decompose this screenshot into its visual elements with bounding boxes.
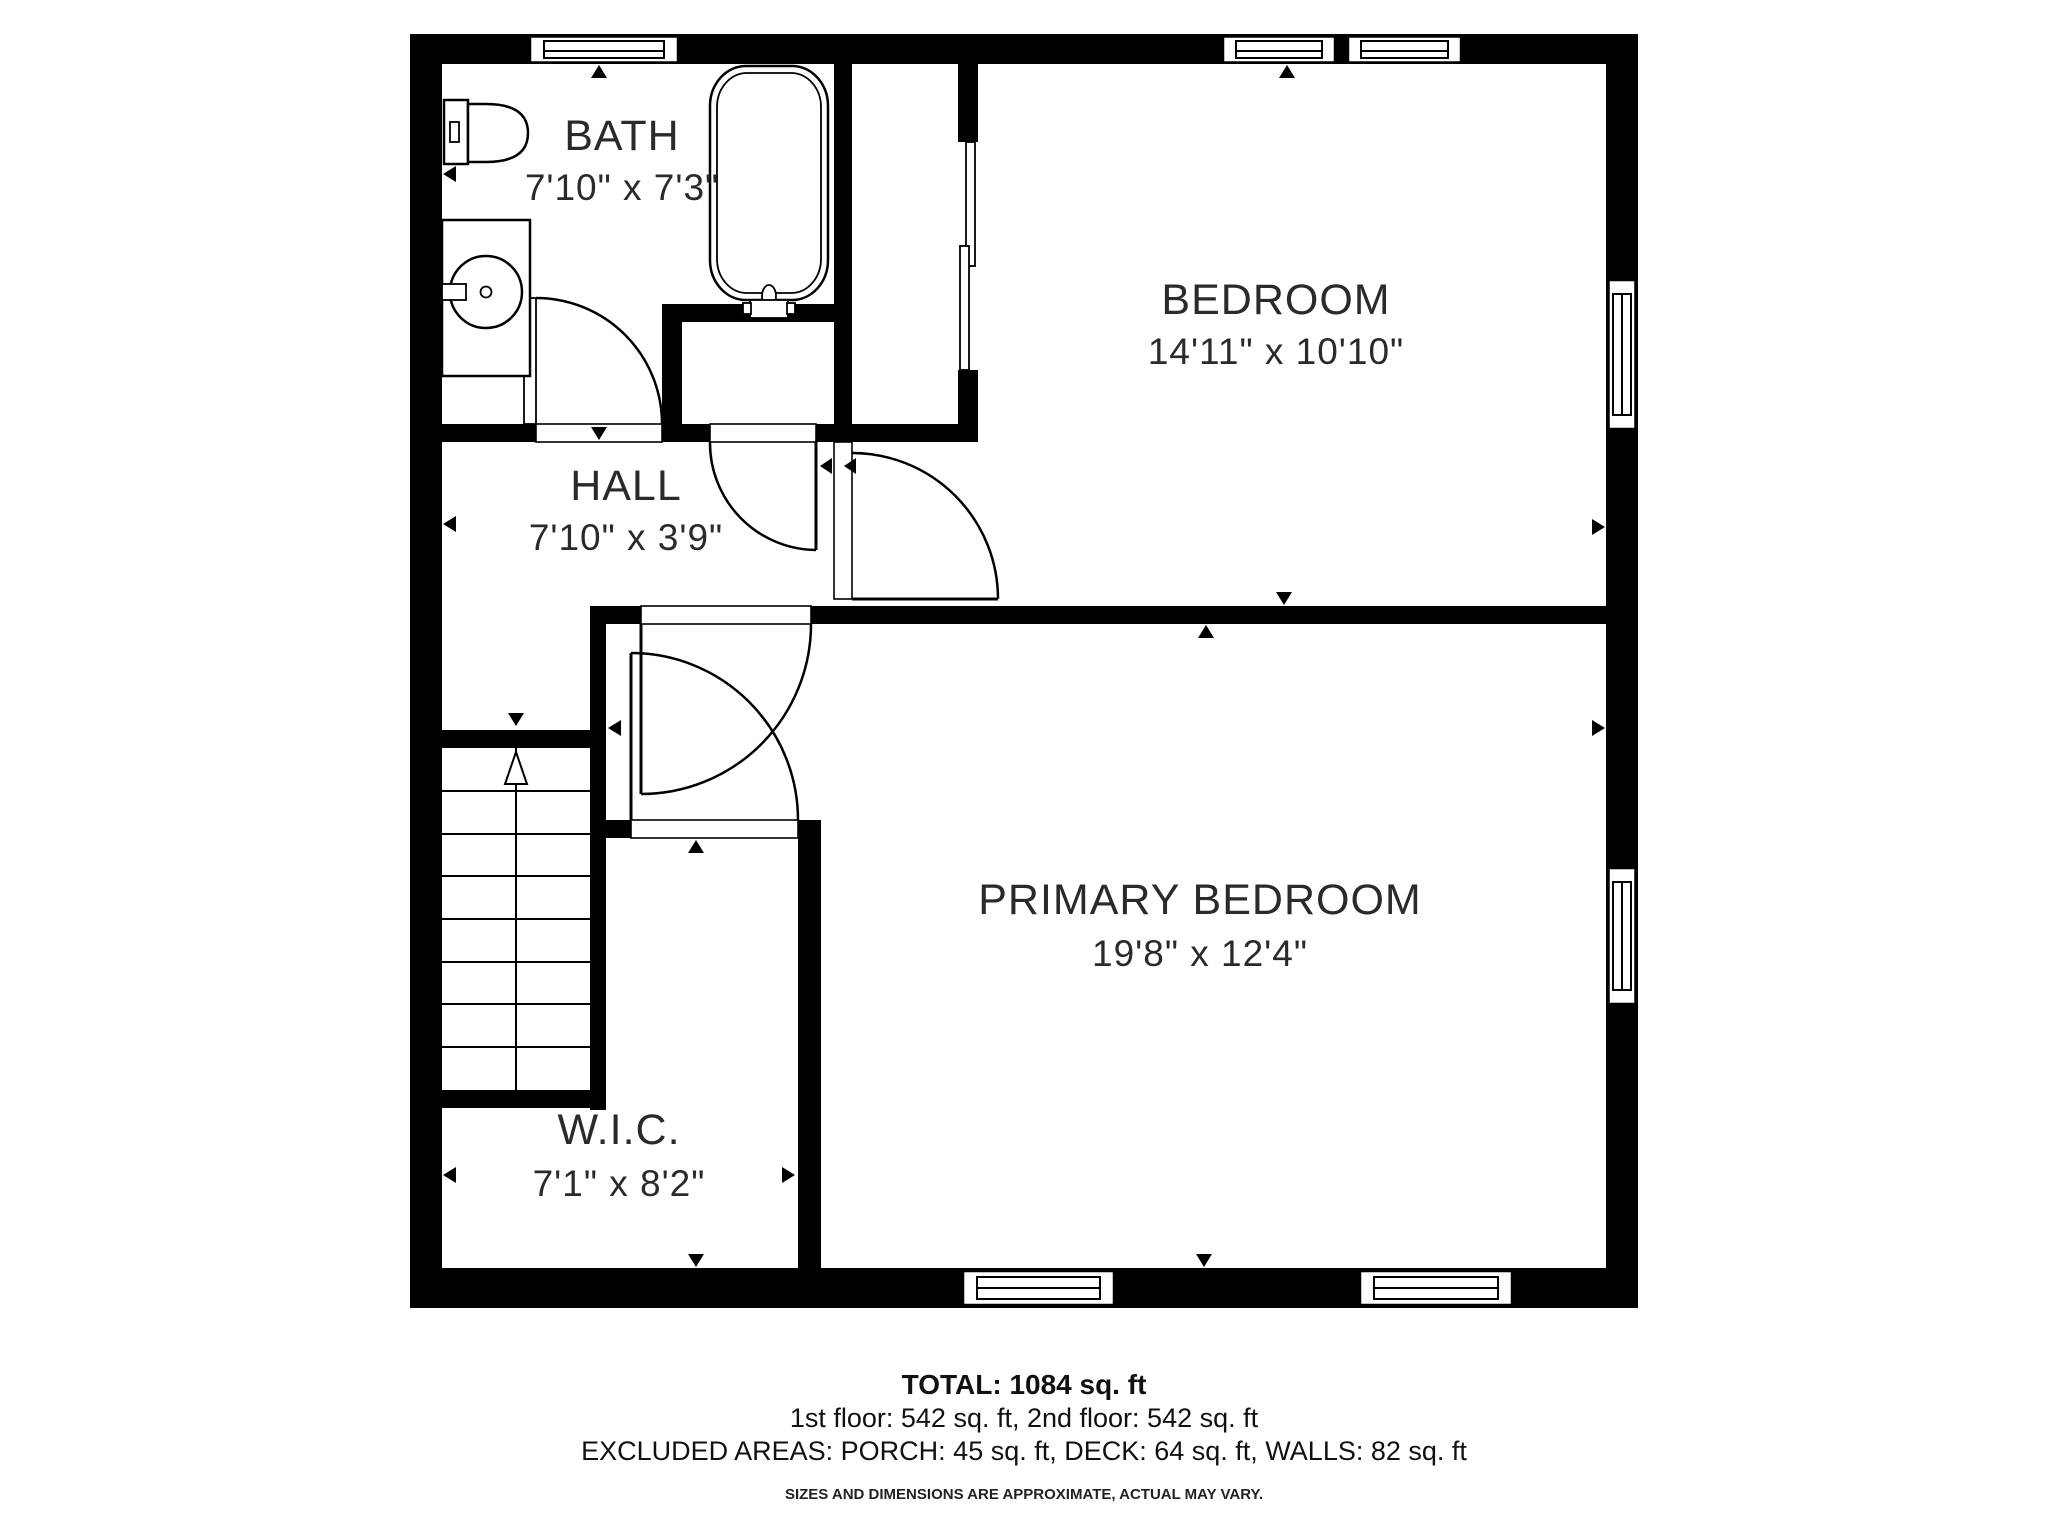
hall-closet-door [710, 424, 816, 550]
wic-door [631, 653, 798, 838]
toilet-icon [444, 100, 528, 164]
arrow-bedroom-top [1279, 65, 1295, 78]
floorplan-drawing: BATH 7'10" x 7'3" HALL 7'10" x 3'9" BEDR… [410, 34, 1638, 1308]
primary-bedroom-label: PRIMARY BEDROOM [978, 876, 1422, 924]
dimension-arrows [443, 65, 1605, 1267]
wall-closet-right-upper [958, 64, 978, 142]
bath-dims: 7'10" x 7'3" [525, 167, 719, 208]
bedroom-dims: 14'11" x 10'10" [1148, 331, 1404, 372]
floorplan-page: BATH 7'10" x 7'3" HALL 7'10" x 3'9" BEDR… [0, 0, 2048, 1536]
bath-window [530, 37, 678, 63]
wall-wic-right [798, 820, 821, 1268]
wall-exterior-left [410, 34, 442, 1308]
arrow-bedroom-right [1592, 519, 1605, 535]
arrow-wic-top [688, 840, 704, 853]
wall-bath-right [834, 64, 852, 424]
stairs [442, 748, 590, 1090]
arrow-wic-left [443, 1167, 456, 1183]
floorplan-svg: BATH 7'10" x 7'3" HALL 7'10" x 3'9" BEDR… [410, 34, 1638, 1308]
wall-nook-left [662, 322, 682, 424]
wall-closet-right-lower [958, 370, 978, 442]
wall-stair-right [590, 606, 606, 1110]
windows [530, 37, 1636, 1306]
primary-side-window [1609, 868, 1636, 1004]
disclaimer-text: SIZES AND DIMENSIONS ARE APPROXIMATE, AC… [0, 1486, 2048, 1503]
sink-vanity-icon [442, 220, 530, 376]
stairs-up-arrow-icon [505, 752, 527, 784]
arrow-hall-left [443, 516, 456, 532]
wall-hall-top-b [662, 424, 710, 442]
wic-label: W.I.C. [557, 1106, 680, 1154]
closet-sliding-door [958, 142, 978, 370]
hall-label: HALL [570, 462, 682, 510]
arrow-bedroom-bottom [1276, 592, 1292, 605]
bath-label: BATH [564, 112, 680, 160]
bathtub-icon [710, 66, 828, 318]
wall-stair-top [442, 730, 590, 748]
primary-bedroom-dims: 19'8" x 12'4" [1092, 933, 1308, 974]
interior-walls [442, 64, 1606, 1268]
wall-hall-top-a [442, 424, 536, 442]
arrow-bath-top [591, 65, 607, 78]
primary-bottom-window-left [963, 1271, 1114, 1305]
arrow-hall-bottom [508, 713, 524, 726]
primary-bedroom-door [641, 606, 811, 794]
wic-dims: 7'1" x 8'2" [533, 1163, 706, 1204]
bedroom-window-right [1348, 37, 1461, 63]
bedroom-door [834, 442, 998, 599]
arrow-bath-left [443, 166, 456, 182]
arrow-wic-bottom [688, 1254, 704, 1267]
arrow-primary-top [1198, 625, 1214, 638]
bedroom-label: BEDROOM [1161, 276, 1390, 324]
bath-door [524, 298, 662, 442]
excluded-areas-text: EXCLUDED AREAS: PORCH: 45 sq. ft, DECK: … [0, 1435, 2048, 1468]
arrow-primary-left [608, 720, 621, 736]
wall-exterior-right [1606, 34, 1638, 1308]
arrow-hall-right [820, 458, 832, 474]
arrow-primary-bottom [1196, 1254, 1212, 1267]
bedroom-window-left [1223, 37, 1335, 63]
arrow-wic-right [782, 1167, 795, 1183]
bedroom-side-window [1609, 280, 1636, 429]
wall-hall-top-c [816, 424, 978, 442]
total-area-text: TOTAL: 1084 sq. ft [0, 1368, 2048, 1402]
hall-dims: 7'10" x 3'9" [529, 517, 723, 558]
arrow-primary-right [1592, 720, 1605, 736]
wall-bedroom-divider-b [811, 606, 1606, 624]
floor-areas-text: 1st floor: 542 sq. ft, 2nd floor: 542 sq… [0, 1402, 2048, 1435]
wall-wic-top-a [606, 820, 631, 838]
area-summary: TOTAL: 1084 sq. ft 1st floor: 542 sq. ft… [0, 1368, 2048, 1503]
primary-bottom-window-right [1360, 1271, 1512, 1305]
